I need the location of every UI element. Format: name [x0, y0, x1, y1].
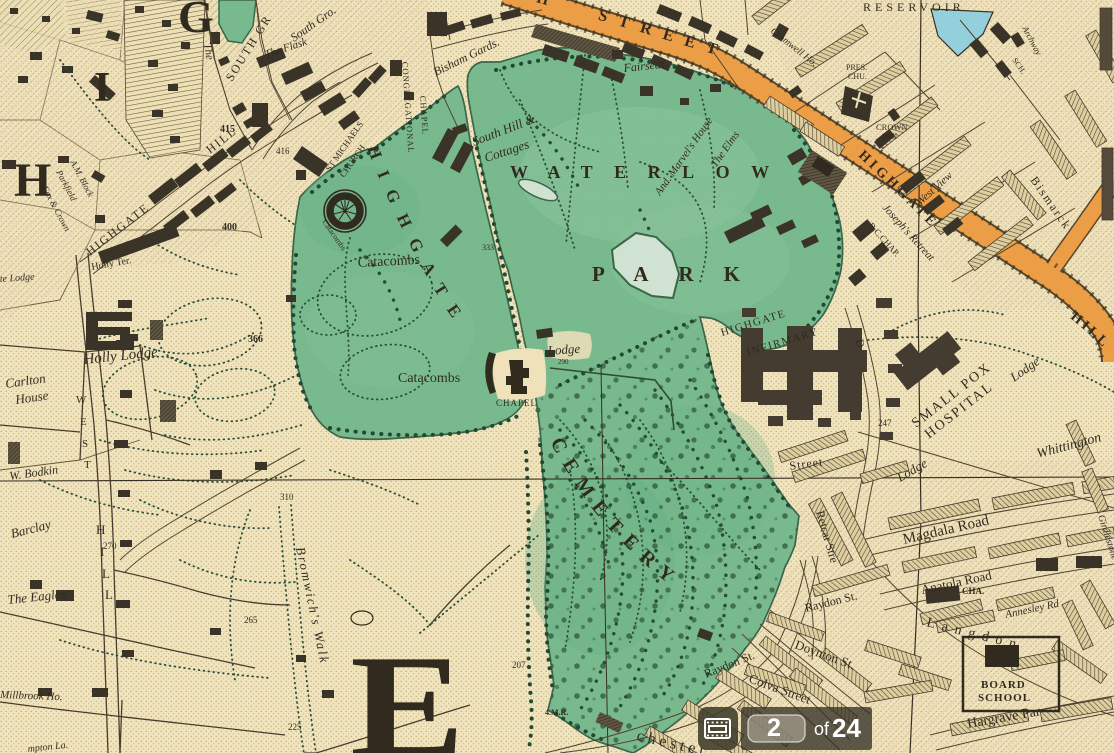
svg-text:2: 2 — [767, 714, 781, 742]
svg-text:of: of — [814, 719, 830, 739]
svg-text:24: 24 — [832, 713, 861, 743]
